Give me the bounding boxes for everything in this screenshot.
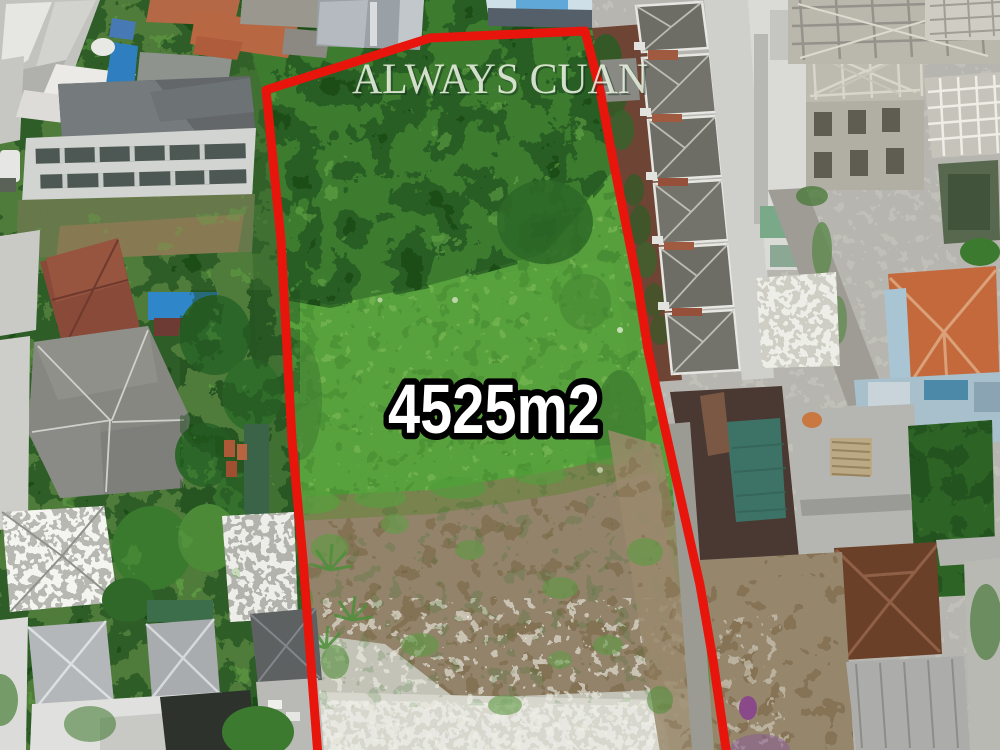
svg-text:ALWAYS CUAN: ALWAYS CUAN — [352, 56, 648, 103]
svg-text:4525m2: 4525m2 — [388, 370, 600, 448]
